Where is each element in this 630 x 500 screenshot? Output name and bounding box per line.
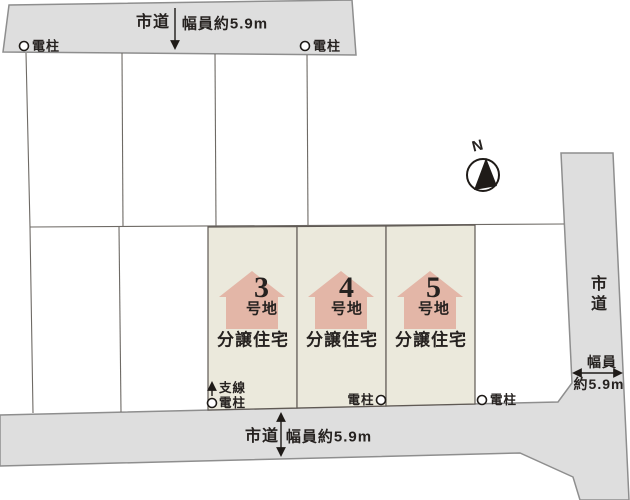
utility-pole-marker — [301, 42, 310, 51]
bottom-road-width-label: 幅員約5.9m — [286, 430, 372, 445]
lot-3-category-label: 分譲住宅 — [217, 332, 289, 349]
plot-divider-upper-3 — [307, 55, 308, 225]
right-road-name-label: 市道 — [588, 275, 604, 315]
top-road-width-label: 幅員約5.9m — [182, 17, 268, 32]
right-road-width-label-line2: 約5.9m — [574, 377, 625, 391]
bottom-road-name-label: 市道 — [245, 429, 279, 445]
utility-pole-marker — [208, 399, 217, 408]
guy-wire-label: 支線 — [219, 382, 246, 395]
plot-boundary-left-edge — [26, 53, 33, 413]
utility-pole-marker — [20, 42, 29, 51]
compass-icon — [467, 158, 499, 191]
lot-4-number: 4 — [339, 273, 355, 303]
site-plan-map: 市道 幅員約5.9m 電柱 電柱 市道 幅員約5.9m 市道 幅員 約5.9m … — [0, 0, 630, 500]
pole-label-right: 電柱 — [490, 394, 517, 407]
lot-3-unit-label: 号地 — [246, 303, 278, 318]
plot-divider-upper-1 — [122, 53, 123, 227]
lot-4-category-label: 分譲住宅 — [306, 332, 378, 349]
right-road-width-label-line1: 幅員 — [587, 355, 617, 369]
utility-pole-marker — [377, 396, 386, 405]
pole-label-middle: 電柱 — [347, 394, 374, 407]
top-road-name-label: 市道 — [136, 15, 170, 31]
lot-3-number: 3 — [254, 273, 270, 303]
lot-5-unit-label: 号地 — [418, 303, 450, 318]
pole-label-top-right: 電柱 — [313, 40, 341, 53]
pole-label-lot3: 電柱 — [219, 397, 246, 410]
plot-divider-upper-2 — [215, 54, 216, 227]
lot-4-unit-label: 号地 — [331, 303, 363, 318]
site-plan-drawing — [0, 0, 630, 500]
plot-divider-lower — [119, 227, 121, 412]
pole-label-top-left: 電柱 — [32, 40, 60, 53]
lot-5-category-label: 分譲住宅 — [395, 332, 467, 349]
lot-5-number: 5 — [426, 273, 442, 303]
utility-pole-marker — [478, 396, 487, 405]
